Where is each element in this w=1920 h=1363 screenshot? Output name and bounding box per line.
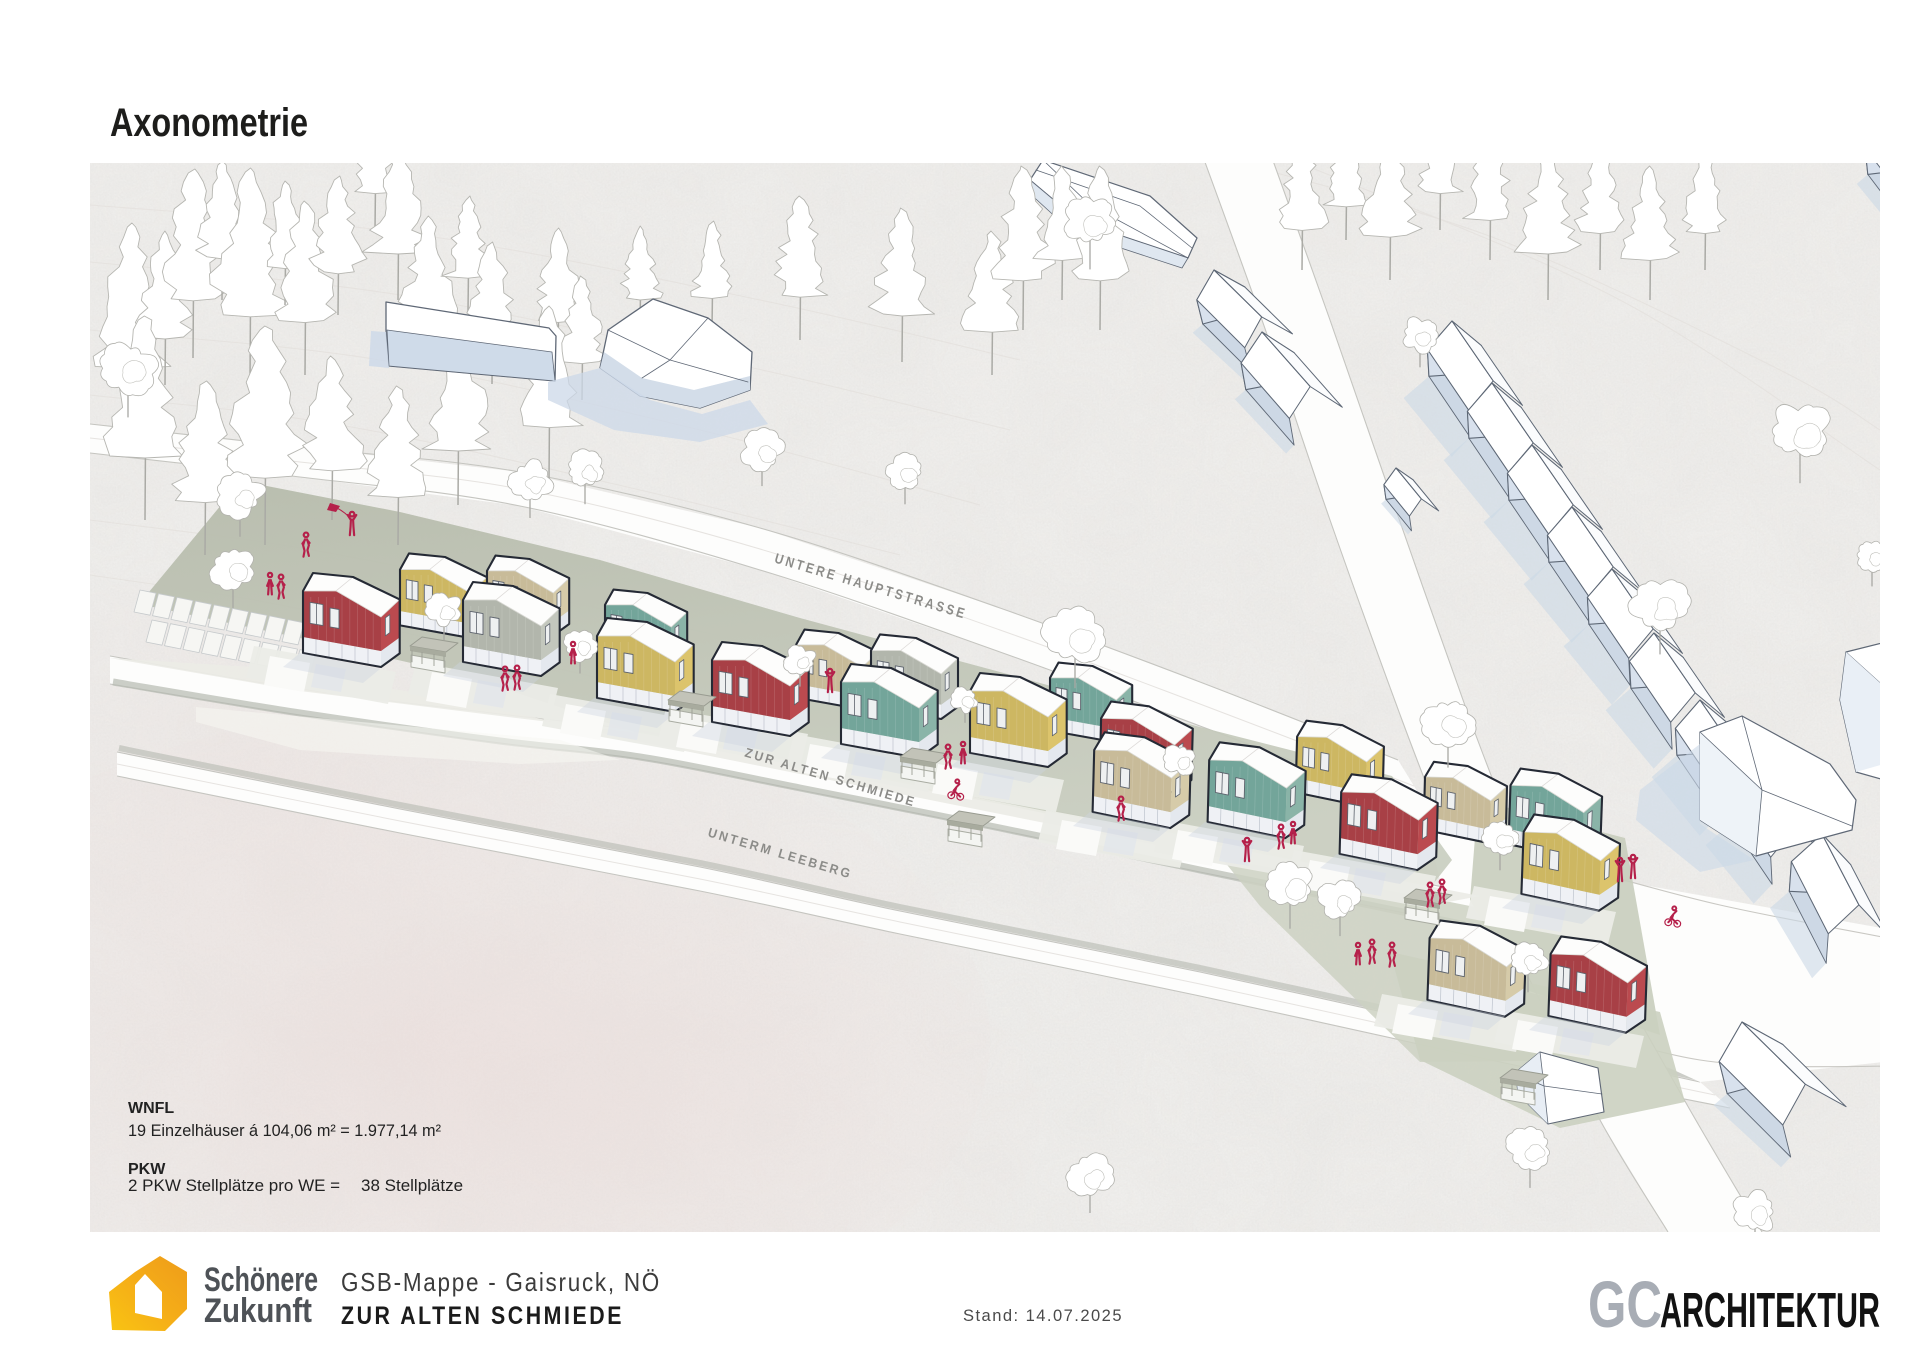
- svg-text:GSB-Mappe - Gaisruck, NÖ: GSB-Mappe - Gaisruck, NÖ: [341, 1267, 661, 1297]
- svg-text:ZUR ALTEN SCHMIEDE: ZUR ALTEN SCHMIEDE: [341, 1302, 624, 1330]
- svg-text:GC: GC: [1588, 1267, 1662, 1341]
- svg-text:19 Einzelhäuser á 104,06 m² =: 19 Einzelhäuser á 104,06 m² = 1.977,14 m…: [128, 1121, 441, 1140]
- svg-text:Zukunft: Zukunft: [204, 1292, 312, 1330]
- svg-text:ARCHITEKTUR: ARCHITEKTUR: [1660, 1284, 1880, 1338]
- svg-text:Axonometrie: Axonometrie: [110, 101, 308, 145]
- svg-text:WNFL: WNFL: [128, 1100, 174, 1117]
- svg-text:2 PKW Stellplätze pro WE =: 2 PKW Stellplätze pro WE =: [128, 1176, 340, 1195]
- svg-text:38 Stellplätze: 38 Stellplätze: [361, 1176, 463, 1195]
- svg-text:Stand: 14.07.2025: Stand: 14.07.2025: [963, 1306, 1123, 1325]
